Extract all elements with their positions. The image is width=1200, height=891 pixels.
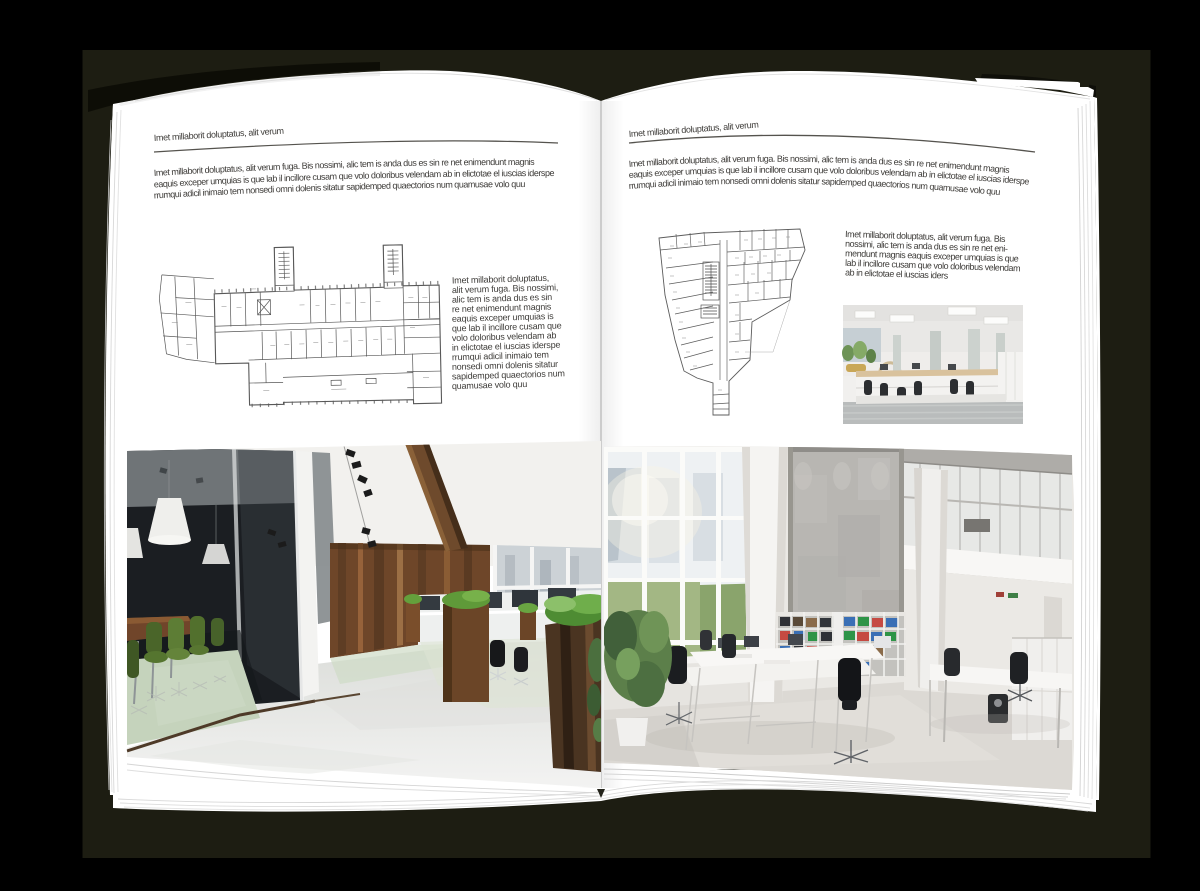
- svg-text:quamusae volo quu: quamusae volo quu: [452, 379, 528, 391]
